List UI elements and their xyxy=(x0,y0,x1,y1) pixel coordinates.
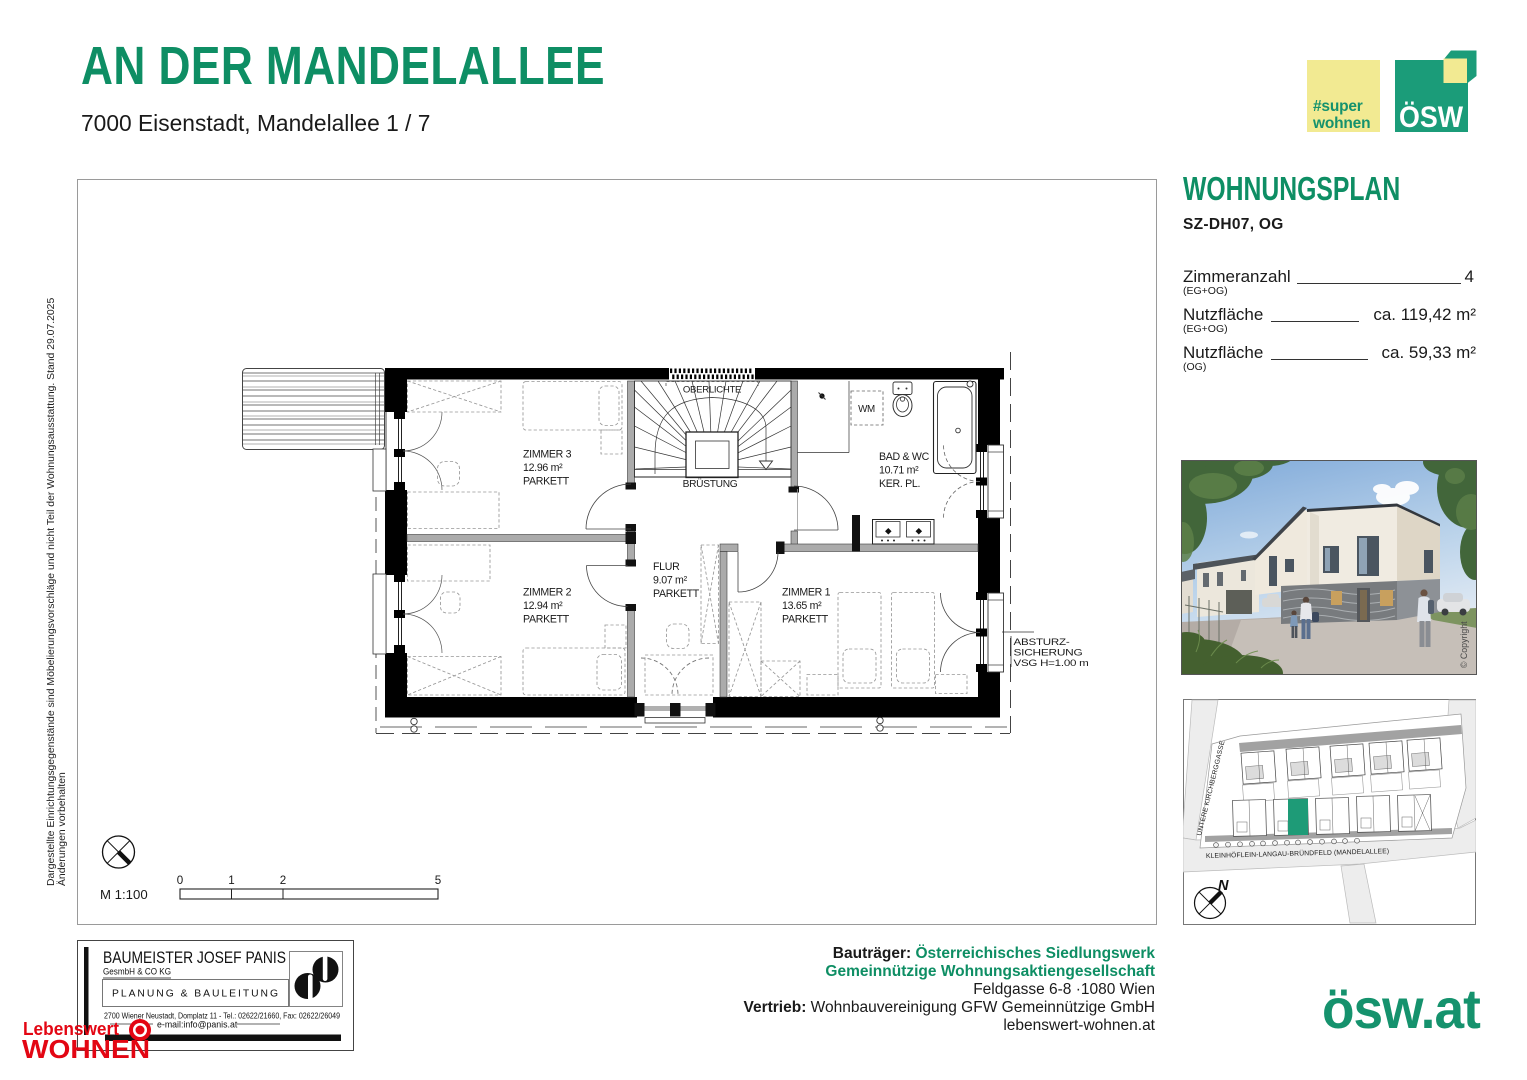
svg-text:WOHNEN: WOHNEN xyxy=(22,1034,150,1064)
svg-text:Dargestellte Einrichtungsgegen: Dargestellte Einrichtungsgegenstände sin… xyxy=(46,298,57,886)
svg-text:5: 5 xyxy=(435,874,441,887)
svg-text:GesmbH & CO KG: GesmbH & CO KG xyxy=(103,967,171,978)
svg-text:13.65 m²: 13.65 m² xyxy=(782,600,822,612)
svg-text:OBERLICHTE: OBERLICHTE xyxy=(683,385,741,396)
svg-text:© Copyright: © Copyright xyxy=(1459,621,1469,668)
svg-text:e-mail:info@panis.at: e-mail:info@panis.at xyxy=(157,1020,238,1030)
svg-text:PARKETT: PARKETT xyxy=(782,614,829,626)
svg-text:BRÜSTUNG: BRÜSTUNG xyxy=(683,478,738,490)
svg-text:ABSTURZ-: ABSTURZ- xyxy=(1014,637,1070,648)
svg-text:FLUR: FLUR xyxy=(653,561,680,573)
svg-text:BAD & WC: BAD & WC xyxy=(879,451,930,463)
svg-text:WM: WM xyxy=(858,404,875,415)
svg-text:Änderungen vorbehalten: Änderungen vorbehalten xyxy=(56,772,68,886)
svg-text:1: 1 xyxy=(228,874,234,887)
svg-text:9.07 m²: 9.07 m² xyxy=(653,575,688,587)
svg-text:10.71 m²: 10.71 m² xyxy=(879,465,919,477)
svg-text:PLANUNG & BAULEITUNG: PLANUNG & BAULEITUNG xyxy=(112,988,280,1000)
svg-text:VSG H=1.00 m: VSG H=1.00 m xyxy=(1014,658,1089,669)
svg-text:ÖSW: ÖSW xyxy=(1399,101,1464,134)
svg-text:ZIMMER 2: ZIMMER 2 xyxy=(523,587,572,599)
svg-text:M 1:100: M 1:100 xyxy=(100,887,148,902)
svg-text:ZIMMER 1: ZIMMER 1 xyxy=(782,587,831,599)
svg-text:PARKETT: PARKETT xyxy=(523,476,570,488)
svg-text:12.94 m²: 12.94 m² xyxy=(523,600,563,612)
svg-text:PARKETT: PARKETT xyxy=(523,614,570,626)
svg-text:PARKETT: PARKETT xyxy=(653,588,700,600)
svg-text:ZIMMER 3: ZIMMER 3 xyxy=(523,449,572,461)
svg-text:12.96 m²: 12.96 m² xyxy=(523,462,563,474)
svg-text:2: 2 xyxy=(280,874,286,887)
svg-text:BAUMEISTER JOSEF PANIS: BAUMEISTER JOSEF PANIS xyxy=(103,949,286,967)
svg-text:SICHERUNG: SICHERUNG xyxy=(1014,648,1083,659)
svg-text:KER. PL.: KER. PL. xyxy=(879,478,920,490)
svg-text:N: N xyxy=(1218,878,1229,894)
svg-text:0: 0 xyxy=(177,874,183,887)
